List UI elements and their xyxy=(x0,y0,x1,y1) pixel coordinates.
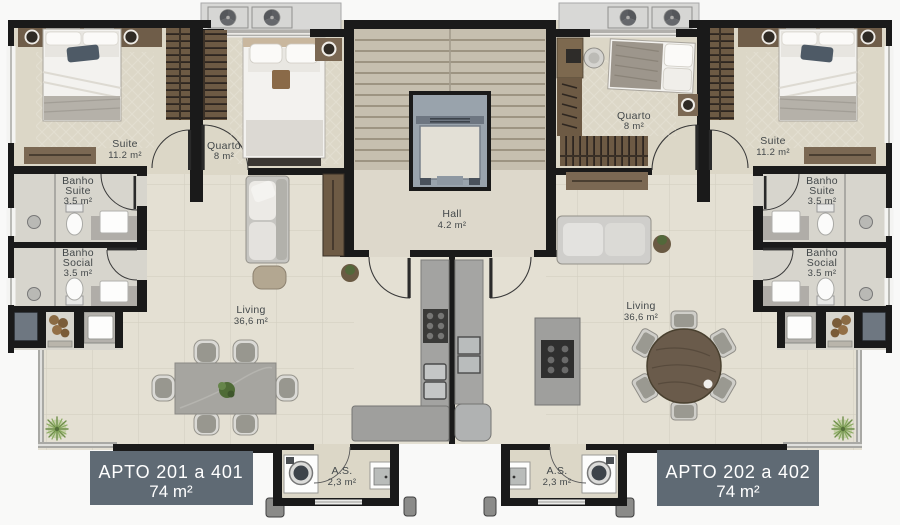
svg-text:A.S.: A.S. xyxy=(546,465,567,477)
svg-text:APTO 201 a 401: APTO 201 a 401 xyxy=(99,462,244,482)
svg-text:8 m²: 8 m² xyxy=(214,151,234,162)
svg-text:Living: Living xyxy=(626,300,655,312)
svg-text:2,3 m²: 2,3 m² xyxy=(328,477,357,488)
svg-text:3.5 m²: 3.5 m² xyxy=(808,268,837,279)
svg-text:A.S.: A.S. xyxy=(331,465,352,477)
svg-text:36,6 m²: 36,6 m² xyxy=(624,312,658,323)
svg-text:2,3 m²: 2,3 m² xyxy=(543,477,572,488)
svg-text:Hall: Hall xyxy=(442,208,461,220)
svg-text:3.5 m²: 3.5 m² xyxy=(64,196,93,207)
svg-text:36,6 m²: 36,6 m² xyxy=(234,316,268,327)
svg-text:74 m²: 74 m² xyxy=(716,482,760,501)
svg-text:74 m²: 74 m² xyxy=(149,482,193,501)
svg-text:3.5 m²: 3.5 m² xyxy=(808,196,837,207)
svg-text:Suite: Suite xyxy=(112,138,137,150)
svg-text:3.5 m²: 3.5 m² xyxy=(64,268,93,279)
svg-text:11.2 m²: 11.2 m² xyxy=(108,150,142,161)
svg-text:11.2 m²: 11.2 m² xyxy=(756,147,790,158)
svg-text:8 m²: 8 m² xyxy=(624,121,644,132)
svg-text:APTO 202 a 402: APTO 202 a 402 xyxy=(666,462,811,482)
svg-text:Suite: Suite xyxy=(760,135,785,147)
svg-text:Living: Living xyxy=(236,304,265,316)
svg-text:4.2 m²: 4.2 m² xyxy=(438,220,467,231)
